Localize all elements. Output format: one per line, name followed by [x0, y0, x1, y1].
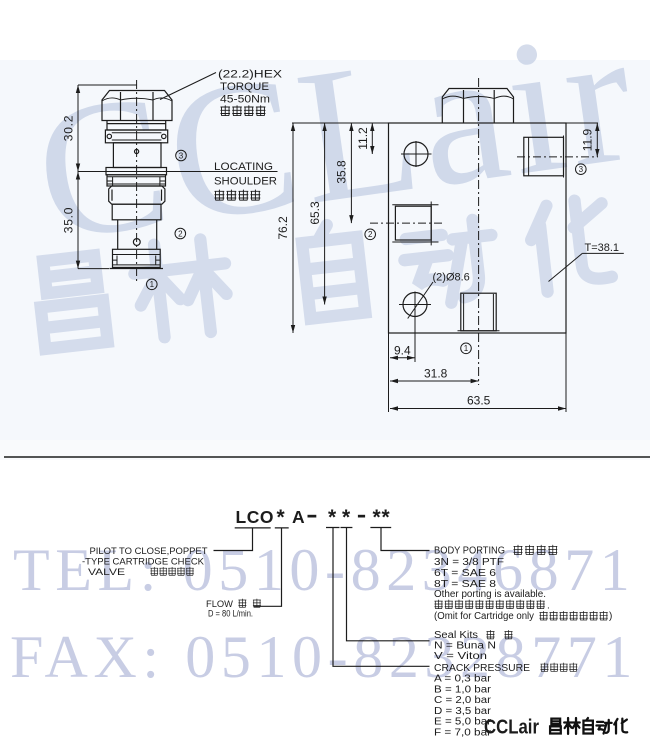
svg-text:35.0: 35.0	[62, 207, 76, 234]
svg-text:(2)Ø8.6: (2)Ø8.6	[433, 272, 470, 284]
svg-text:2: 2	[368, 230, 373, 239]
svg-text:11.2: 11.2	[356, 127, 370, 150]
svg-text:31.8: 31.8	[424, 367, 448, 381]
svg-text:C = 2,0 bar: C = 2,0 bar	[434, 695, 492, 706]
svg-text:*: *	[277, 506, 286, 529]
svg-text:9.4: 9.4	[394, 344, 411, 358]
svg-text:*: *	[382, 506, 391, 529]
svg-text:(Omit for Cartridge only: (Omit for Cartridge only	[434, 611, 534, 622]
svg-text:45-50Nm: 45-50Nm	[220, 94, 270, 106]
svg-text:D = 80 L/min.: D = 80 L/min.	[208, 609, 253, 620]
svg-text:D = 3,5 bar: D = 3,5 bar	[434, 706, 492, 717]
svg-text:11.9: 11.9	[581, 128, 595, 151]
svg-text:CCLair: CCLair	[484, 717, 539, 739]
svg-text:TORQUE: TORQUE	[220, 81, 269, 93]
svg-text:LOCATING: LOCATING	[214, 161, 273, 173]
svg-text:-TYPE CARTRIDGE CHECK: -TYPE CARTRIDGE CHECK	[82, 557, 205, 568]
svg-text:(22.2)HEX: (22.2)HEX	[218, 69, 283, 81]
svg-text:PILOT TO CLOSE,POPPET: PILOT TO CLOSE,POPPET	[90, 546, 208, 557]
svg-text:B = 1,0 bar: B = 1,0 bar	[434, 684, 492, 695]
svg-text:Other porting is available.: Other porting is available.	[434, 589, 546, 600]
svg-text:.: .	[547, 600, 550, 611]
svg-text:3: 3	[579, 165, 584, 174]
svg-text:2: 2	[178, 229, 183, 238]
svg-text:3N = 3/8 PTF: 3N = 3/8 PTF	[434, 557, 504, 568]
svg-text:*: *	[373, 506, 382, 529]
svg-text:1: 1	[464, 344, 469, 353]
svg-text:A = 0,3 bar: A = 0,3 bar	[434, 674, 492, 685]
svg-text:BODY PORTING: BODY PORTING	[434, 546, 505, 557]
svg-text:N = Buna N: N = Buna N	[434, 640, 496, 651]
svg-text:A: A	[292, 507, 305, 527]
svg-text:35.8: 35.8	[335, 160, 349, 184]
svg-text:3: 3	[179, 151, 184, 160]
svg-text:FAX: 0510-82328771: FAX: 0510-82328771	[10, 624, 638, 690]
svg-text:65.3: 65.3	[308, 201, 322, 225]
svg-text:30.2: 30.2	[62, 115, 76, 142]
svg-text:76.2: 76.2	[276, 216, 290, 240]
svg-text:): )	[609, 611, 612, 622]
svg-text:SHOULDER: SHOULDER	[214, 175, 277, 187]
svg-text:LCO: LCO	[236, 507, 274, 527]
svg-text:T=38.1: T=38.1	[585, 242, 620, 254]
svg-text:CRACK PRESSURE: CRACK PRESSURE	[434, 663, 530, 674]
svg-text:VALVE: VALVE	[88, 567, 125, 578]
svg-text:*: *	[328, 506, 337, 529]
svg-text:6T = SAE 6: 6T = SAE 6	[434, 568, 497, 579]
svg-text:*: *	[342, 506, 351, 529]
svg-text:V = Viton: V = Viton	[434, 651, 487, 662]
svg-text:1: 1	[150, 280, 155, 289]
svg-text:63.5: 63.5	[467, 394, 491, 408]
